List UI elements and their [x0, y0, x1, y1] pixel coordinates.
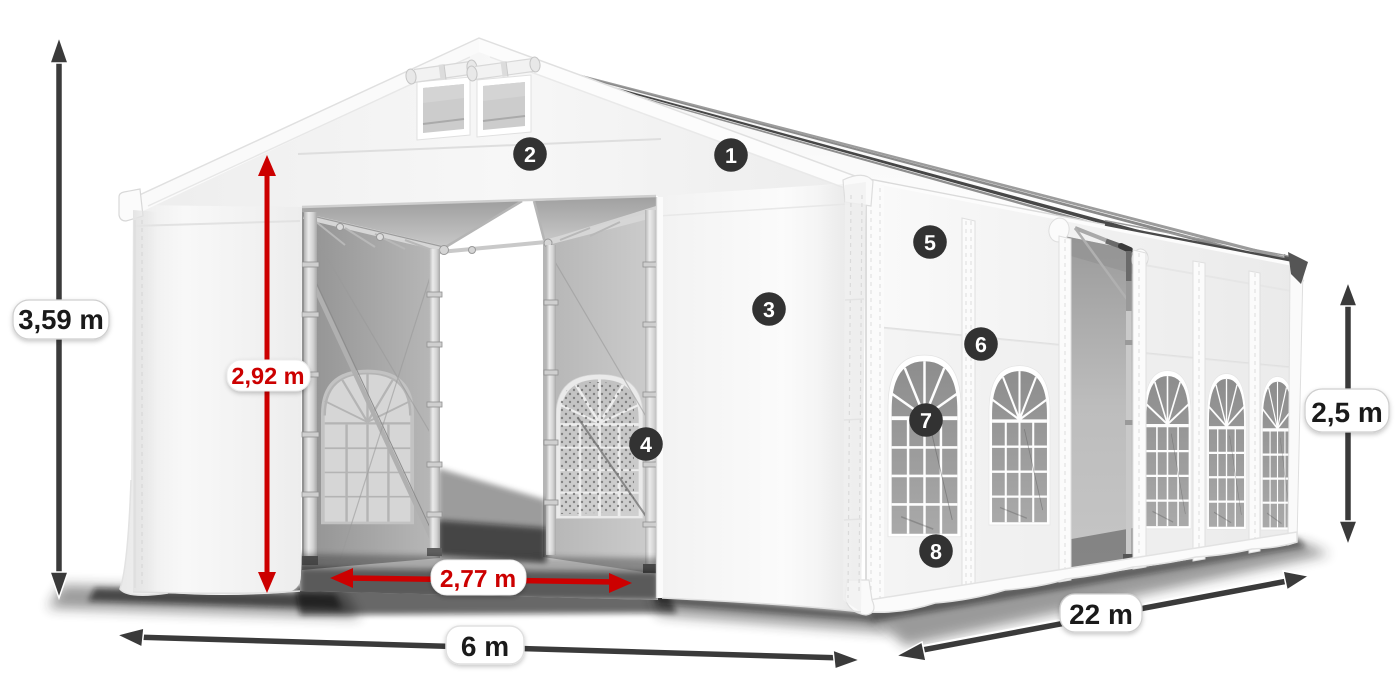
svg-text:7: 7 — [920, 409, 932, 433]
svg-text:2,77 m: 2,77 m — [440, 566, 516, 593]
svg-text:2,92 m: 2,92 m — [231, 363, 304, 389]
svg-text:6 m: 6 m — [461, 631, 509, 662]
svg-text:22 m: 22 m — [1069, 599, 1133, 630]
svg-text:4: 4 — [640, 433, 652, 457]
svg-text:8: 8 — [930, 540, 942, 564]
svg-text:3: 3 — [763, 298, 775, 322]
svg-text:6: 6 — [975, 333, 987, 357]
svg-text:2: 2 — [524, 143, 536, 167]
svg-text:2,5 m: 2,5 m — [1311, 397, 1383, 428]
svg-text:5: 5 — [924, 231, 936, 255]
svg-text:3,59 m: 3,59 m — [18, 304, 104, 335]
svg-text:1: 1 — [725, 144, 737, 168]
